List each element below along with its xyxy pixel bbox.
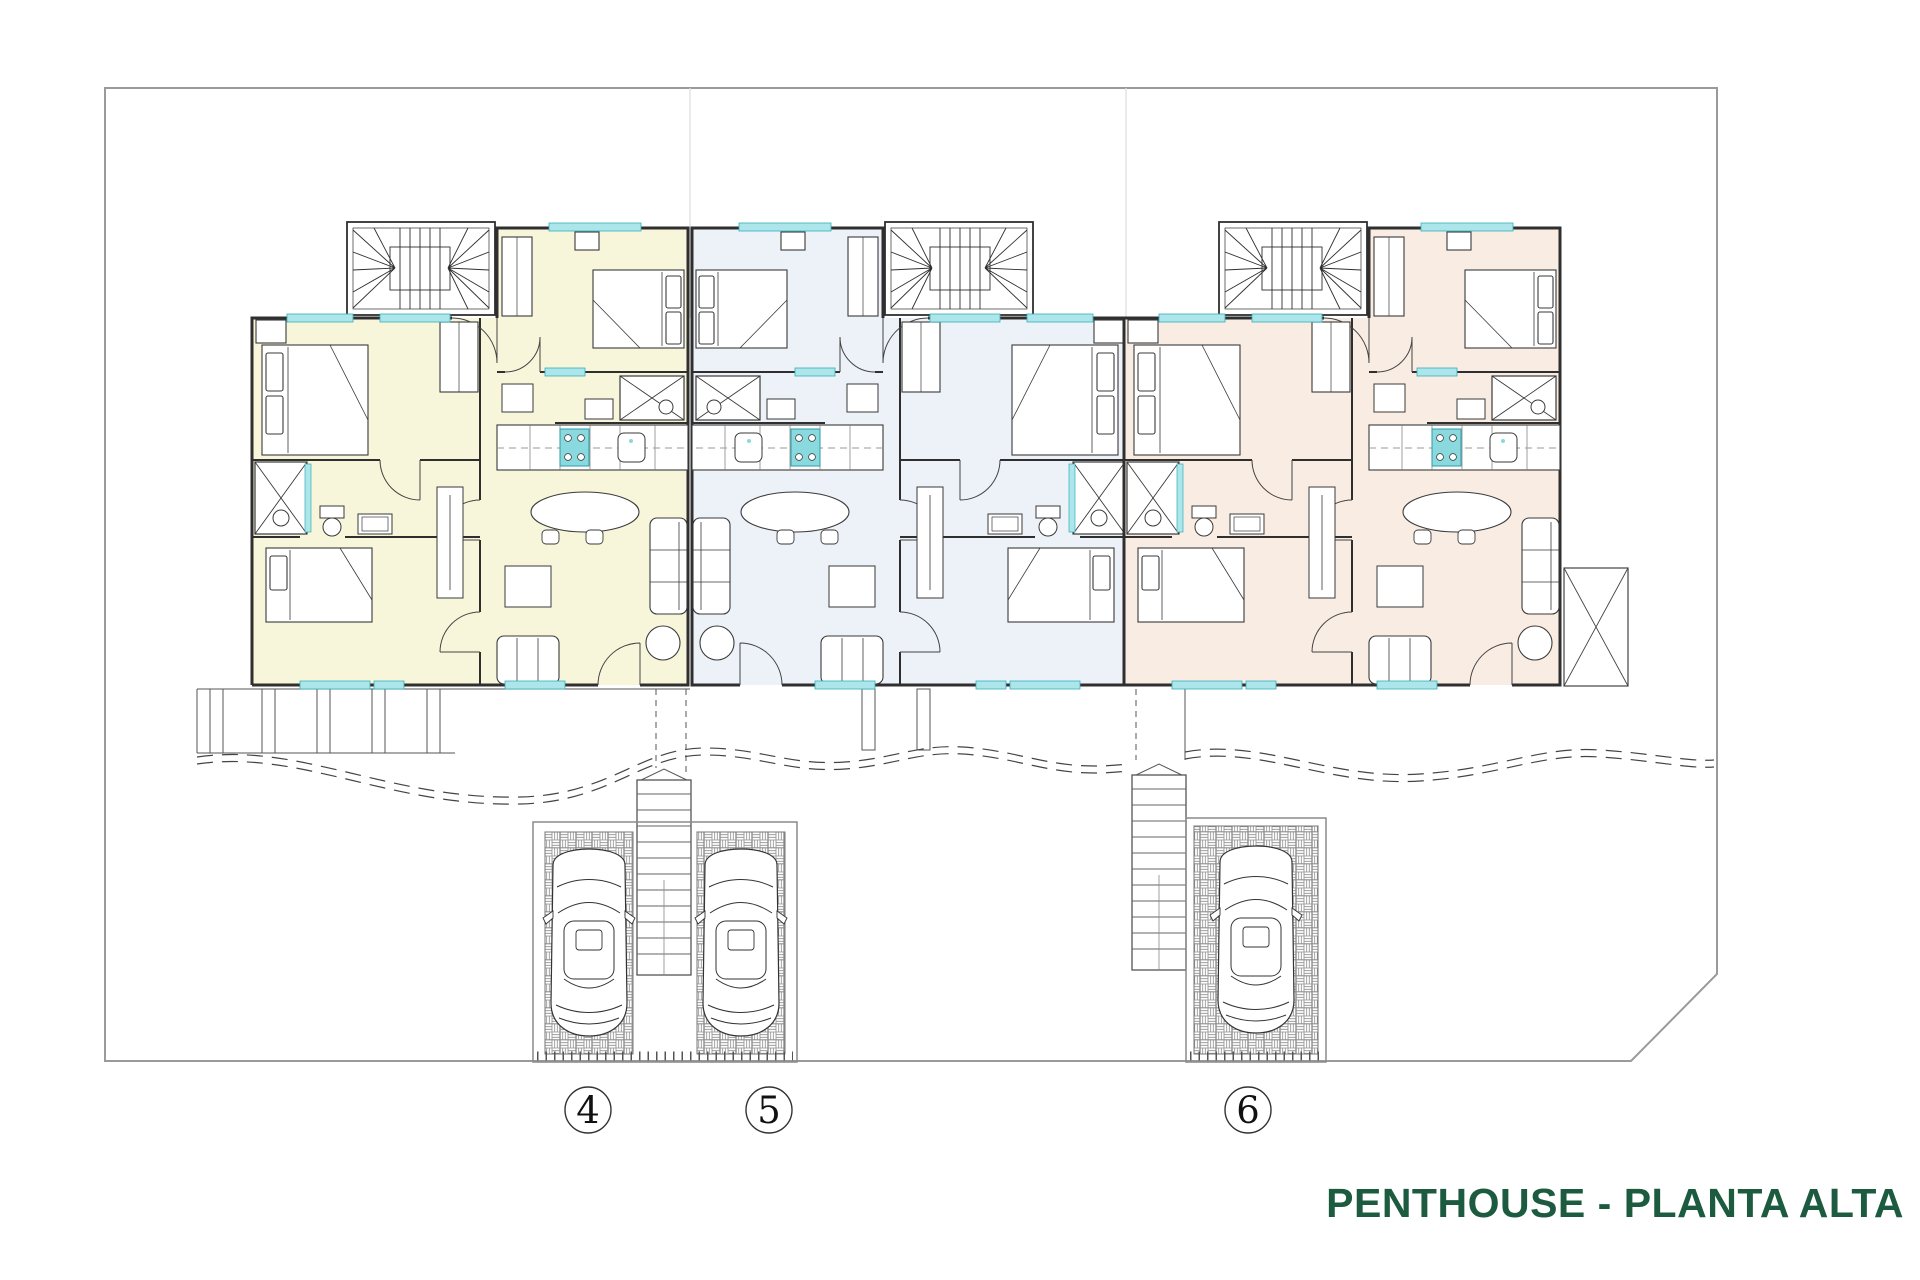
unit-6-number: 6 — [1236, 1089, 1260, 1132]
street-staircase-2 — [1132, 764, 1186, 970]
street-staircase-1 — [637, 769, 691, 975]
unit-5-number: 5 — [757, 1089, 781, 1132]
floor-plan-sheet: 4 5 6 PENTHOUSE - PLANTA ALTA — [0, 0, 1920, 1280]
unit-4-badge: 4 — [565, 1087, 611, 1133]
car-icon — [1210, 846, 1302, 1033]
plan-title: PENTHOUSE - PLANTA ALTA — [1326, 1180, 1904, 1227]
unit-6-badge: 6 — [1225, 1087, 1271, 1133]
unit-5-badge: 5 — [746, 1087, 792, 1133]
floor-plan-drawing: 4 5 6 — [0, 0, 1920, 1280]
unit-4-number: 4 — [576, 1089, 600, 1132]
lightwell-x-icon — [1564, 568, 1628, 686]
car-icon — [695, 849, 787, 1036]
car-icon — [543, 849, 635, 1036]
